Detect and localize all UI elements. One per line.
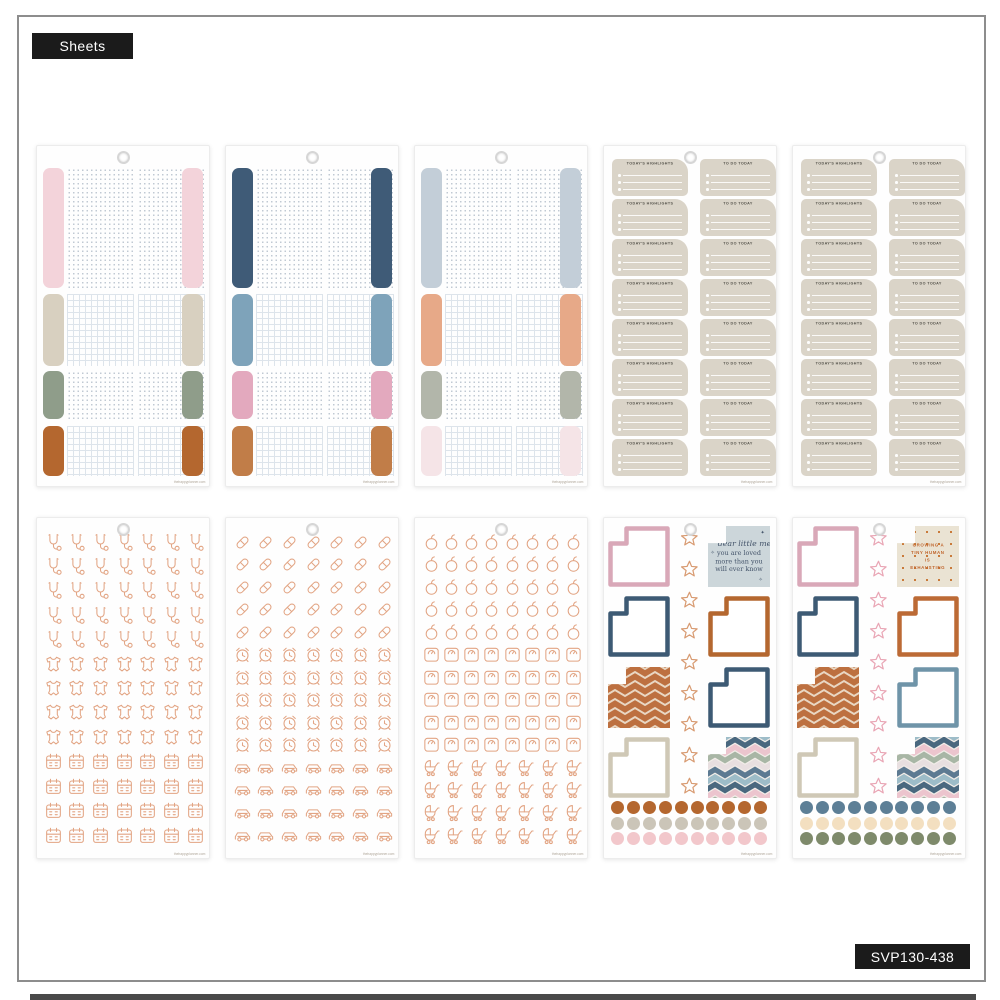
car-icon: [351, 826, 370, 845]
sticker-sheet-daily-labels-1: thehappyplanner.comTODAY'S HIGHLIGHTSTO …: [603, 145, 777, 487]
to-do-today-sticker: TO DO TODAY: [700, 199, 776, 236]
car-icon: [304, 758, 323, 777]
sheets-type-badge: Sheets: [32, 33, 133, 59]
alarm-clock-icon: [327, 735, 346, 754]
label-title: TODAY'S HIGHLIGHTS: [815, 402, 862, 406]
grid-paper-sticker: [445, 294, 512, 366]
baby-onesie-icon: [44, 703, 63, 722]
writing-line: [812, 175, 871, 176]
baby-onesie-icon: [138, 703, 157, 722]
pill-icon: [304, 578, 323, 597]
writing-line: [623, 389, 682, 390]
car-icon: [233, 826, 252, 845]
writing-line: [623, 269, 682, 270]
writing-line: [711, 375, 770, 376]
alarm-clock-icon: [304, 735, 323, 754]
scale-icon: [482, 690, 501, 709]
hole-punch: [117, 523, 130, 536]
car-icon: [233, 758, 252, 777]
writing-line: [623, 229, 682, 230]
stroller-icon: [469, 780, 488, 799]
stroller-icon: [493, 758, 512, 777]
stroller-icon: [540, 780, 559, 799]
apple-icon: [543, 555, 562, 574]
dot-sticker: [864, 801, 877, 814]
brand-url: thehappyplanner.com: [740, 853, 772, 856]
quote-line: you are loved: [717, 550, 761, 558]
label-title: TODAY'S HIGHLIGHTS: [815, 442, 862, 446]
writing-line: [623, 422, 682, 423]
writing-line: [812, 182, 871, 183]
alarm-clock-icon: [304, 713, 323, 732]
apple-icon: [442, 578, 461, 597]
car-icon: [327, 826, 346, 845]
to-do-today-sticker: TO DO TODAY: [700, 279, 776, 316]
todays-highlights-sticker: TODAY'S HIGHLIGHTS: [801, 199, 877, 236]
stethoscope-icon: [115, 557, 134, 576]
writing-line: [812, 309, 871, 310]
quote-line: IS: [925, 558, 930, 564]
apple-icon: [422, 533, 441, 552]
baby-onesie-icon: [138, 728, 157, 747]
grid-paper-sticker: [67, 426, 134, 476]
label-title: TO DO TODAY: [903, 362, 950, 366]
brand-url: thehappyplanner.com: [929, 481, 961, 484]
stethoscope-icon: [162, 630, 181, 649]
stethoscope-icon: [44, 533, 63, 552]
apple-icon: [442, 555, 461, 574]
alarm-clock-icon: [233, 735, 252, 754]
label-title: TODAY'S HIGHLIGHTS: [815, 362, 862, 366]
baby-onesie-icon: [115, 655, 134, 674]
stroller-icon: [516, 780, 535, 799]
star-icon: [868, 776, 889, 797]
label-title: TO DO TODAY: [714, 242, 761, 246]
calendar-icon: [115, 752, 134, 771]
brand-url: thehappyplanner.com: [551, 481, 583, 484]
dot-sticker: [800, 801, 813, 814]
index-tab-sticker: [182, 426, 203, 476]
index-tab-sticker: [560, 426, 581, 476]
stroller-icon: [516, 758, 535, 777]
dot-sticker: [832, 832, 845, 845]
sparkle-icon: ✧: [758, 578, 762, 583]
chevron-patch-sticker: [708, 737, 770, 798]
writing-line: [623, 175, 682, 176]
brand-url: thehappyplanner.com: [362, 853, 394, 856]
grid-paper-sticker: [256, 426, 323, 476]
baby-onesie-icon: [138, 655, 157, 674]
todays-highlights-sticker: TODAY'S HIGHLIGHTS: [612, 159, 688, 196]
stethoscope-icon: [91, 606, 110, 625]
label-title: TODAY'S HIGHLIGHTS: [626, 282, 673, 286]
writing-line: [900, 295, 959, 296]
writing-line: [623, 302, 682, 303]
stethoscope-icon: [44, 581, 63, 600]
hole-punch: [495, 151, 508, 164]
alarm-clock-icon: [327, 645, 346, 664]
stethoscope-icon: [91, 533, 110, 552]
pill-icon: [256, 600, 275, 619]
baby-onesie-icon: [67, 679, 86, 698]
writing-line: [900, 415, 959, 416]
scale-icon: [462, 645, 481, 664]
pill-icon: [375, 578, 394, 597]
apple-icon: [462, 600, 481, 619]
scale-icon: [442, 690, 461, 709]
todays-highlights-sticker: TODAY'S HIGHLIGHTS: [801, 399, 877, 436]
stethoscope-icon: [115, 606, 134, 625]
pill-icon: [375, 555, 394, 574]
scale-icon: [462, 668, 481, 687]
todays-highlights-sticker: TODAY'S HIGHLIGHTS: [612, 279, 688, 316]
stethoscope-icon: [138, 533, 157, 552]
writing-line: [812, 382, 871, 383]
quote-script-line: dear little me: [718, 541, 771, 549]
writing-line: [711, 342, 770, 343]
writing-line: [623, 455, 682, 456]
car-icon: [256, 826, 275, 845]
star-icon: [868, 590, 889, 611]
writing-line: [623, 349, 682, 350]
baby-onesie-icon: [67, 655, 86, 674]
baby-onesie-icon: [162, 655, 181, 674]
stethoscope-icon: [162, 606, 181, 625]
dot-sticker: [643, 832, 656, 845]
star-icon: [679, 776, 700, 797]
index-tab-sticker: [560, 294, 581, 366]
label-title: TO DO TODAY: [714, 442, 761, 446]
writing-line: [812, 429, 871, 430]
corner-frame-sticker: [797, 526, 859, 587]
writing-line: [900, 462, 959, 463]
dots-paper-sticker: [67, 371, 134, 419]
sticker-sheet-icons-baby-health: thehappyplanner.com: [36, 517, 210, 859]
writing-line: [900, 335, 959, 336]
todays-highlights-sticker: TODAY'S HIGHLIGHTS: [801, 319, 877, 356]
calendar-icon: [91, 826, 110, 845]
alarm-clock-icon: [233, 668, 252, 687]
star-icon: [679, 559, 700, 580]
scale-icon: [523, 690, 542, 709]
scale-icon: [503, 735, 522, 754]
calendar-icon: [91, 777, 110, 796]
dot-sticker: [927, 817, 940, 830]
baby-onesie-icon: [44, 679, 63, 698]
stethoscope-icon: [91, 581, 110, 600]
scale-icon: [523, 713, 542, 732]
stethoscope-icon: [115, 581, 134, 600]
label-title: TO DO TODAY: [714, 322, 761, 326]
stethoscope-icon: [186, 606, 205, 625]
scale-icon: [543, 690, 562, 709]
car-icon: [351, 758, 370, 777]
pill-icon: [351, 533, 370, 552]
alarm-clock-icon: [375, 713, 394, 732]
baby-onesie-icon: [186, 655, 205, 674]
alarm-clock-icon: [280, 735, 299, 754]
hole-punch: [306, 151, 319, 164]
scale-icon: [543, 713, 562, 732]
apple-icon: [543, 533, 562, 552]
writing-line: [711, 455, 770, 456]
writing-line: [900, 302, 959, 303]
index-tab-sticker: [232, 426, 253, 476]
apple-icon: [482, 578, 501, 597]
corner-frame-sticker: [897, 596, 959, 657]
scale-icon: [564, 713, 583, 732]
alarm-clock-icon: [375, 735, 394, 754]
baby-onesie-icon: [91, 703, 110, 722]
baby-onesie-icon: [162, 728, 181, 747]
stethoscope-icon: [67, 630, 86, 649]
writing-line: [812, 342, 871, 343]
apple-icon: [482, 623, 501, 642]
car-icon: [256, 780, 275, 799]
dot-sticker: [832, 817, 845, 830]
alarm-clock-icon: [256, 690, 275, 709]
label-title: TO DO TODAY: [903, 202, 950, 206]
apple-icon: [422, 600, 441, 619]
dot-sticker: [911, 817, 924, 830]
dot-sticker: [754, 817, 767, 830]
apple-icon: [564, 578, 583, 597]
sticker-sheet-icons-food-baby: thehappyplanner.com: [414, 517, 588, 859]
pill-icon: [256, 623, 275, 642]
writing-line: [711, 415, 770, 416]
calendar-icon: [44, 801, 63, 820]
dot-sticker: [738, 801, 751, 814]
pill-icon: [304, 555, 323, 574]
scale-icon: [422, 668, 441, 687]
corner-frame-sticker: [708, 667, 770, 728]
dot-sticker: [816, 832, 829, 845]
star-icon: [679, 621, 700, 642]
calendar-icon: [186, 752, 205, 771]
todays-highlights-sticker: TODAY'S HIGHLIGHTS: [612, 199, 688, 236]
stroller-icon: [445, 826, 464, 845]
todays-highlights-sticker: TODAY'S HIGHLIGHTS: [801, 279, 877, 316]
writing-line: [812, 349, 871, 350]
to-do-today-sticker: TO DO TODAY: [700, 439, 776, 476]
scale-icon: [482, 713, 501, 732]
brand-url: thehappyplanner.com: [740, 481, 772, 484]
to-do-today-sticker: TO DO TODAY: [700, 239, 776, 276]
writing-line: [812, 215, 871, 216]
dots-paper-sticker: [445, 371, 512, 419]
car-icon: [351, 803, 370, 822]
writing-line: [900, 389, 959, 390]
star-icon: [868, 745, 889, 766]
writing-line: [812, 389, 871, 390]
apple-icon: [503, 578, 522, 597]
stroller-icon: [493, 826, 512, 845]
writing-line: [711, 335, 770, 336]
dot-sticker: [832, 801, 845, 814]
dot-sticker: [848, 801, 861, 814]
dot-sticker: [816, 817, 829, 830]
dot-sticker: [691, 817, 704, 830]
alarm-clock-icon: [375, 645, 394, 664]
dot-sticker: [880, 817, 893, 830]
chevron-patch-sticker: [897, 737, 959, 798]
dot-sticker: [848, 817, 861, 830]
dot-sticker: [659, 817, 672, 830]
writing-line: [812, 415, 871, 416]
star-icon: [868, 714, 889, 735]
corner-frame-sticker: [797, 596, 859, 657]
scale-icon: [503, 668, 522, 687]
scale-icon: [442, 713, 461, 732]
writing-line: [812, 422, 871, 423]
dots-paper-sticker: [256, 371, 323, 419]
to-do-today-sticker: TO DO TODAY: [889, 399, 965, 436]
label-title: TODAY'S HIGHLIGHTS: [626, 402, 673, 406]
dot-sticker: [611, 817, 624, 830]
pill-icon: [280, 533, 299, 552]
dot-sticker: [722, 801, 735, 814]
pill-icon: [351, 578, 370, 597]
scale-icon: [564, 645, 583, 664]
scale-icon: [564, 735, 583, 754]
index-tab-sticker: [182, 168, 203, 288]
scale-icon: [442, 668, 461, 687]
dot-sticker: [927, 801, 940, 814]
stroller-icon: [516, 826, 535, 845]
calendar-icon: [162, 801, 181, 820]
label-title: TODAY'S HIGHLIGHTS: [626, 242, 673, 246]
scale-icon: [543, 668, 562, 687]
writing-line: [623, 309, 682, 310]
car-icon: [327, 803, 346, 822]
writing-line: [900, 189, 959, 190]
calendar-icon: [67, 752, 86, 771]
label-title: TO DO TODAY: [714, 162, 761, 166]
car-icon: [233, 803, 252, 822]
stethoscope-icon: [138, 581, 157, 600]
alarm-clock-icon: [304, 668, 323, 687]
to-do-today-sticker: TO DO TODAY: [700, 159, 776, 196]
scale-icon: [422, 735, 441, 754]
stroller-icon: [493, 803, 512, 822]
pill-icon: [351, 555, 370, 574]
pill-icon: [280, 578, 299, 597]
todays-highlights-sticker: TODAY'S HIGHLIGHTS: [801, 239, 877, 276]
writing-line: [900, 455, 959, 456]
alarm-clock-icon: [327, 668, 346, 687]
index-tab-sticker: [421, 294, 442, 366]
apple-icon: [523, 533, 542, 552]
label-title: TODAY'S HIGHLIGHTS: [626, 322, 673, 326]
stethoscope-icon: [67, 557, 86, 576]
apple-icon: [523, 600, 542, 619]
car-icon: [304, 826, 323, 845]
apple-icon: [482, 555, 501, 574]
calendar-icon: [91, 801, 110, 820]
writing-line: [711, 462, 770, 463]
alarm-clock-icon: [327, 690, 346, 709]
corner-frame-sticker: [797, 737, 859, 798]
scale-icon: [442, 645, 461, 664]
pill-icon: [327, 578, 346, 597]
chevron-patch-sticker: [608, 667, 670, 728]
calendar-icon: [44, 752, 63, 771]
to-do-today-sticker: TO DO TODAY: [889, 279, 965, 316]
writing-line: [812, 462, 871, 463]
label-title: TODAY'S HIGHLIGHTS: [626, 202, 673, 206]
stethoscope-icon: [67, 533, 86, 552]
apple-icon: [462, 578, 481, 597]
alarm-clock-icon: [280, 690, 299, 709]
scale-icon: [462, 690, 481, 709]
index-tab-sticker: [421, 168, 442, 288]
alarm-clock-icon: [375, 690, 394, 709]
alarm-clock-icon: [304, 645, 323, 664]
dot-sticker: [738, 832, 751, 845]
stethoscope-icon: [186, 581, 205, 600]
stroller-icon: [493, 780, 512, 799]
writing-line: [900, 469, 959, 470]
scale-icon: [503, 713, 522, 732]
apple-icon: [523, 578, 542, 597]
dot-sticker: [738, 817, 751, 830]
scale-icon: [503, 645, 522, 664]
quote-line: more than you: [715, 558, 762, 566]
pill-icon: [280, 623, 299, 642]
dot-sticker: [675, 817, 688, 830]
label-title: TODAY'S HIGHLIGHTS: [815, 162, 862, 166]
calendar-icon: [162, 826, 181, 845]
apple-icon: [442, 533, 461, 552]
calendar-icon: [44, 826, 63, 845]
writing-line: [711, 302, 770, 303]
alarm-clock-icon: [304, 690, 323, 709]
apple-icon: [503, 555, 522, 574]
index-tab-sticker: [371, 168, 392, 288]
dot-sticker: [627, 801, 640, 814]
baby-onesie-icon: [186, 703, 205, 722]
dot-sticker: [706, 817, 719, 830]
calendar-icon: [138, 752, 157, 771]
stroller-icon: [516, 803, 535, 822]
index-tab-sticker: [182, 371, 203, 419]
writing-line: [711, 429, 770, 430]
dots-paper-sticker: [256, 168, 323, 288]
writing-line: [623, 469, 682, 470]
label-title: TO DO TODAY: [903, 402, 950, 406]
quote-line: TINY HUMAN: [911, 550, 945, 556]
baby-onesie-icon: [67, 728, 86, 747]
writing-line: [900, 429, 959, 430]
calendar-icon: [138, 801, 157, 820]
writing-line: [711, 269, 770, 270]
sticker-sheet-index-tabs-3: thehappyplanner.com: [414, 145, 588, 487]
writing-line: [812, 229, 871, 230]
label-title: TO DO TODAY: [714, 362, 761, 366]
index-tab-sticker: [232, 168, 253, 288]
apple-icon: [503, 533, 522, 552]
dot-sticker: [943, 801, 956, 814]
apple-icon: [442, 623, 461, 642]
writing-line: [812, 295, 871, 296]
dot-sticker: [706, 832, 719, 845]
writing-line: [900, 269, 959, 270]
stethoscope-icon: [67, 606, 86, 625]
index-tab-sticker: [232, 371, 253, 419]
pill-icon: [256, 533, 275, 552]
writing-line: [623, 462, 682, 463]
alarm-clock-icon: [351, 645, 370, 664]
